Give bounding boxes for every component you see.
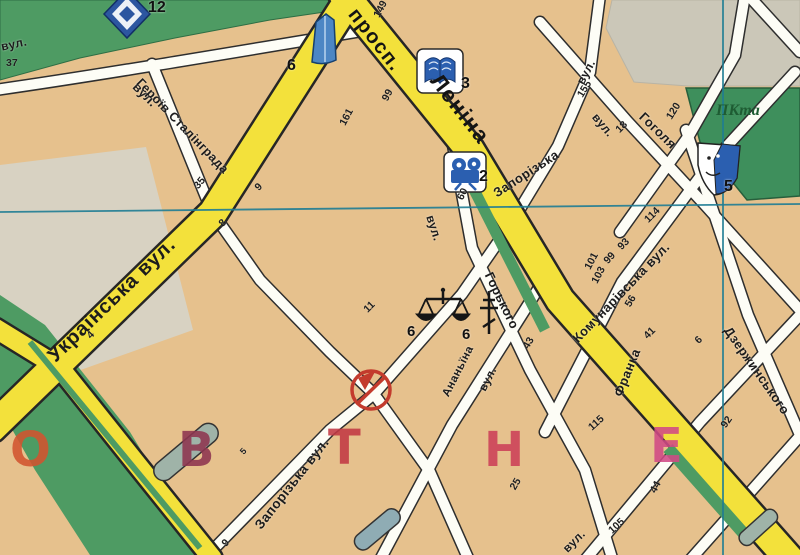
district-letter: Е [650, 422, 683, 470]
tower-building-icon [312, 14, 336, 64]
district-letter: В [178, 426, 215, 474]
poi-number-theatre: 5 [724, 179, 733, 195]
poi-number-court: 6 [407, 324, 415, 339]
district-letter: Н [484, 426, 524, 474]
poi-number-church: 6 [462, 327, 470, 342]
poi-number-sports: 12 [148, 0, 166, 16]
house-number: 37 [6, 58, 18, 69]
poi-number-cinema: 2 [479, 169, 488, 185]
district-letter: Т [328, 424, 361, 472]
district-letter: О [10, 426, 51, 474]
poi-number-tower: 6 [287, 58, 296, 74]
poi-number-library: 3 [461, 76, 470, 92]
map-canvas: просп. Леніна Українська вул. вул. Герої… [0, 0, 800, 555]
park-label: ПКта [716, 103, 760, 119]
